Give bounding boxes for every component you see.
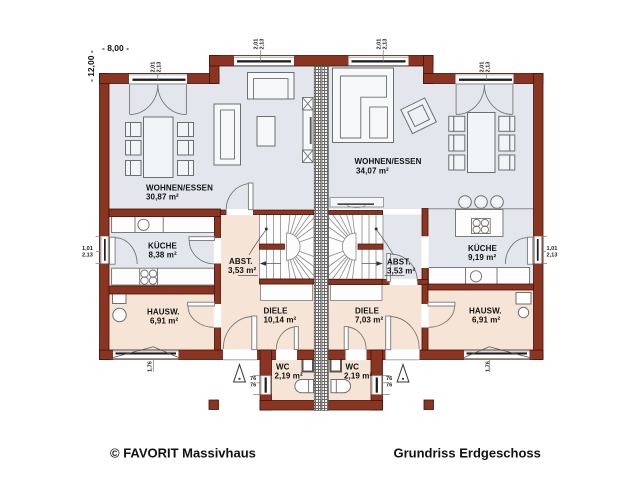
svg-text:2,13: 2,13: [157, 62, 163, 73]
svg-text:3,53 m²: 3,53 m²: [228, 266, 257, 275]
svg-text:1,76: 1,76: [486, 361, 492, 372]
svg-text:76: 76: [386, 383, 392, 389]
svg-text:2,13: 2,13: [260, 39, 266, 50]
svg-text:8,38 m²: 8,38 m²: [149, 251, 178, 260]
svg-text:2,01: 2,01: [254, 39, 260, 50]
svg-text:2,19 m²: 2,19 m²: [344, 372, 373, 381]
svg-text:- 12,00 -: - 12,00 -: [86, 50, 96, 82]
svg-text:6,91 m²: 6,91 m²: [472, 316, 501, 325]
svg-text:- 8,00 -: - 8,00 -: [102, 43, 129, 53]
svg-text:WOHNEN/ESSEN: WOHNEN/ESSEN: [146, 184, 213, 193]
svg-text:3,53 m²: 3,53 m²: [387, 267, 416, 276]
svg-text:ABST.: ABST.: [387, 258, 411, 267]
svg-text:KÜCHE: KÜCHE: [468, 244, 498, 253]
svg-text:2,01: 2,01: [480, 62, 486, 73]
svg-text:7,03 m²: 7,03 m²: [355, 316, 384, 325]
svg-text:2,13: 2,13: [486, 62, 492, 73]
svg-text:WOHNEN/ESSEN: WOHNEN/ESSEN: [355, 157, 422, 166]
svg-text:30,87 m²: 30,87 m²: [146, 193, 179, 202]
svg-text:10,14 m²: 10,14 m²: [264, 316, 297, 325]
svg-text:2,13: 2,13: [547, 253, 558, 259]
svg-text:DIELE: DIELE: [355, 307, 380, 316]
svg-text:34,07 m²: 34,07 m²: [356, 167, 389, 176]
svg-text:2,01: 2,01: [377, 39, 383, 50]
svg-text:2,13: 2,13: [82, 253, 93, 259]
svg-text:Grundriss Erdgeschoss: Grundriss Erdgeschoss: [394, 446, 541, 461]
svg-text:© FAVORIT Massivhaus: © FAVORIT Massivhaus: [110, 446, 256, 461]
svg-text:HAUSW.: HAUSW.: [469, 307, 502, 316]
svg-text:1,76: 1,76: [148, 361, 154, 372]
svg-text:9,19 m²: 9,19 m²: [468, 253, 497, 262]
svg-text:WC: WC: [346, 363, 360, 372]
svg-text:KÜCHE: KÜCHE: [148, 242, 178, 251]
svg-text:2,01: 2,01: [151, 62, 157, 73]
svg-text:ABST.: ABST.: [229, 257, 253, 266]
svg-text:76: 76: [250, 383, 256, 389]
svg-text:2,19 m²: 2,19 m²: [275, 372, 304, 381]
svg-text:1,01: 1,01: [82, 246, 93, 252]
svg-text:HAUSW.: HAUSW.: [147, 308, 180, 317]
svg-text:DIELE: DIELE: [264, 307, 289, 316]
svg-text:WC: WC: [276, 363, 290, 372]
svg-text:2,13: 2,13: [383, 39, 389, 50]
svg-text:1,01: 1,01: [547, 246, 558, 252]
svg-text:76: 76: [250, 376, 256, 382]
svg-text:6,91 m²: 6,91 m²: [150, 317, 179, 326]
svg-text:76: 76: [386, 376, 392, 382]
